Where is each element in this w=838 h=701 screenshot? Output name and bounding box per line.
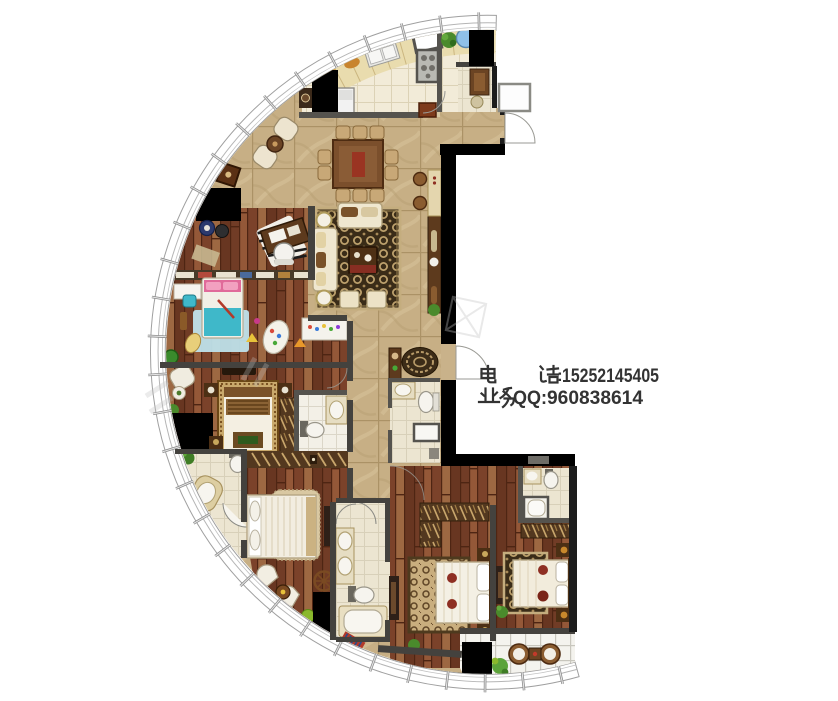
svg-text:15252145405: 15252145405 xyxy=(562,366,659,387)
svg-text:QQ:: QQ: xyxy=(513,388,547,409)
svg-text:960838614: 960838614 xyxy=(547,388,643,409)
